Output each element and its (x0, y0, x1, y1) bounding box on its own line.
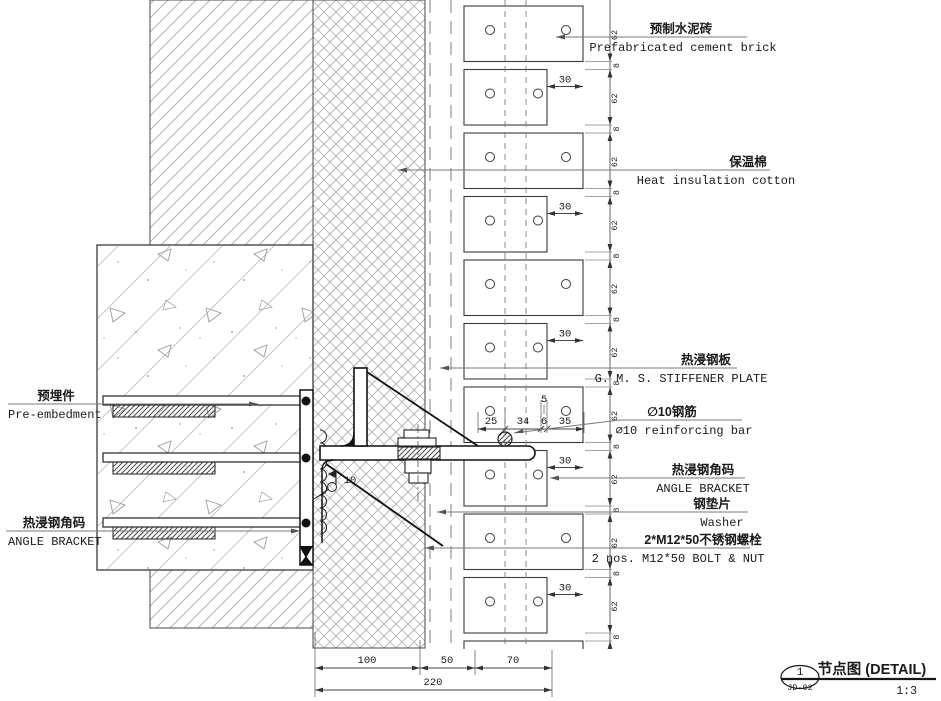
brick-panel (464, 133, 583, 189)
dim-arrow-icon (608, 324, 613, 332)
dim-arrow-icon (547, 592, 555, 597)
vertical-angle-post (299, 390, 313, 565)
brick-panel (464, 514, 583, 570)
brick-panel (464, 70, 547, 126)
joint-width-label: 8 (612, 190, 622, 195)
dim-label-bottom: 70 (507, 655, 520, 667)
label-brick-en: Prefabricated cement brick (589, 41, 776, 55)
label-insulation-cn: 保温棉 (728, 154, 767, 169)
dim-arrow-icon (608, 70, 613, 78)
masonry-wall-lower (150, 570, 313, 628)
dim-arrow-icon (420, 666, 428, 671)
detail-scale: 1:3 (896, 685, 917, 698)
course-height-label: 62 (610, 601, 620, 611)
label-washer-cn: 钢垫片 (693, 496, 731, 511)
dim-arrow-icon (608, 260, 613, 268)
dim-arrow-icon (608, 181, 613, 189)
stagger-dim-label: 30 (559, 456, 572, 468)
label-insulation-en: Heat insulation cotton (637, 174, 795, 188)
dim-arrow-icon (575, 338, 583, 343)
joint-width-label: 8 (612, 634, 622, 639)
course-height-label: 62 (610, 347, 620, 357)
washer-section (398, 447, 440, 459)
dim-arrow-icon (608, 197, 613, 205)
course-height-label: 62 (610, 220, 620, 230)
bracket-vertical-leg (354, 368, 367, 446)
title-block: 1 JD-02 节点图 (DETAIL) 1:3 (781, 661, 936, 698)
label-bracket-left-cn: 热浸钢角码 (23, 515, 86, 530)
joint-width-label: 8 (612, 571, 622, 576)
dim-arrow-icon (315, 666, 323, 671)
detail-title: 节点图 (DETAIL) (818, 661, 927, 678)
dim-label-bottom: 100 (358, 655, 377, 667)
dim-arrow-icon (544, 666, 552, 671)
dim-arrow-icon (608, 117, 613, 125)
dim-arrow-icon (547, 211, 555, 216)
dim-arrow-icon (547, 84, 555, 89)
label-embed-en: Pre-embedment (8, 408, 102, 422)
dim-label-bottom: 50 (441, 655, 454, 667)
dim-arrow-icon (608, 435, 613, 443)
dim-label-top: 25 (485, 416, 498, 428)
label-embed-cn: 预埋件 (37, 388, 75, 403)
dim-arrow-icon (608, 244, 613, 252)
dim-arrow-icon (412, 666, 420, 671)
brick-panel (464, 324, 547, 380)
masonry-wall-upper (150, 0, 313, 245)
label-bolt-cn: 2*M12*50不锈钢螺栓 (644, 532, 762, 547)
dim-label-top: 6 (541, 416, 547, 428)
insulation-layer (313, 0, 425, 648)
joint-width-label: 8 (612, 444, 622, 449)
detail-number: 1 (797, 667, 804, 679)
cad-canvas: 6286283062862830628628306286283062862830 (0, 0, 941, 701)
brick-panel (464, 578, 547, 634)
course-height-label: 62 (610, 93, 620, 103)
label-bracket-cn: 热浸钢角码 (672, 462, 735, 477)
label-bracket-en: ANGLE BRACKET (656, 482, 750, 496)
course-height-label: 62 (610, 284, 620, 294)
dim-arrow-icon (575, 211, 583, 216)
stagger-dim-label: 30 (559, 583, 572, 595)
detail-drawing-sheet: 6286283062862830628628306286283062862830 (0, 0, 941, 701)
weld-size-label: 10 (344, 475, 357, 487)
dim-label-gap: 5 (541, 394, 547, 406)
course-height-label: 62 (610, 157, 620, 167)
stagger-dim-label: 30 (559, 329, 572, 341)
dim-arrow-icon (608, 578, 613, 586)
stagger-dim-label: 30 (559, 202, 572, 214)
dim-arrow-icon (575, 592, 583, 597)
brick-panel (464, 197, 547, 253)
label-washer-en: Washer (700, 516, 743, 530)
dim-arrow-icon (608, 514, 613, 522)
dim-label-total: 220 (424, 677, 443, 689)
dim-arrow-icon (608, 641, 613, 649)
stagger-dim-label: 30 (559, 75, 572, 87)
brick-panel (464, 260, 583, 316)
label-brick-cn: 预制水泥砖 (650, 21, 713, 36)
anchor-hole-icon (562, 661, 571, 670)
label-rebar-en: ∅10 reinforcing bar (616, 424, 753, 438)
dim-arrow-icon (315, 688, 323, 693)
dim-arrow-icon (608, 451, 613, 459)
course-height-label: 62 (610, 30, 620, 40)
label-bracket-left-en: ANGLE BRACKET (8, 535, 102, 549)
joint-width-label: 8 (612, 317, 622, 322)
dim-arrow-icon (544, 688, 552, 693)
dim-label-top: 34 (517, 416, 530, 428)
detail-ref: JD-02 (787, 683, 813, 693)
dim-arrow-icon (608, 498, 613, 506)
label-stiffener-cn: 热浸钢板 (681, 352, 732, 367)
label-rebar-cn: ∅10钢筋 (647, 404, 697, 419)
dim-arrow-icon (608, 133, 613, 141)
dim-arrow-icon (575, 84, 583, 89)
course-height-label: 62 (610, 474, 620, 484)
joint-width-label: 8 (612, 63, 622, 68)
joint-width-label: 8 (612, 253, 622, 258)
dim-arrow-icon (608, 625, 613, 633)
dim-arrow-icon (467, 666, 475, 671)
label-stiffener-en: G. M. S. STIFFENER PLATE (595, 372, 768, 386)
dim-arrow-icon (575, 465, 583, 470)
dim-arrow-icon (608, 387, 613, 395)
dim-arrow-icon (608, 308, 613, 316)
course-height-label: 62 (610, 411, 620, 421)
rebar-section-icon (498, 432, 512, 446)
label-bolt-en: 2 nos. M12*50 BOLT & NUT (592, 552, 765, 566)
brick-panel (464, 6, 583, 62)
course-height-label: 62 (610, 538, 620, 548)
dim-arrow-icon (475, 666, 483, 671)
brick-panel (464, 387, 583, 443)
joint-width-label: 8 (612, 126, 622, 131)
dim-arrow-icon (547, 465, 555, 470)
dim-arrow-icon (547, 338, 555, 343)
